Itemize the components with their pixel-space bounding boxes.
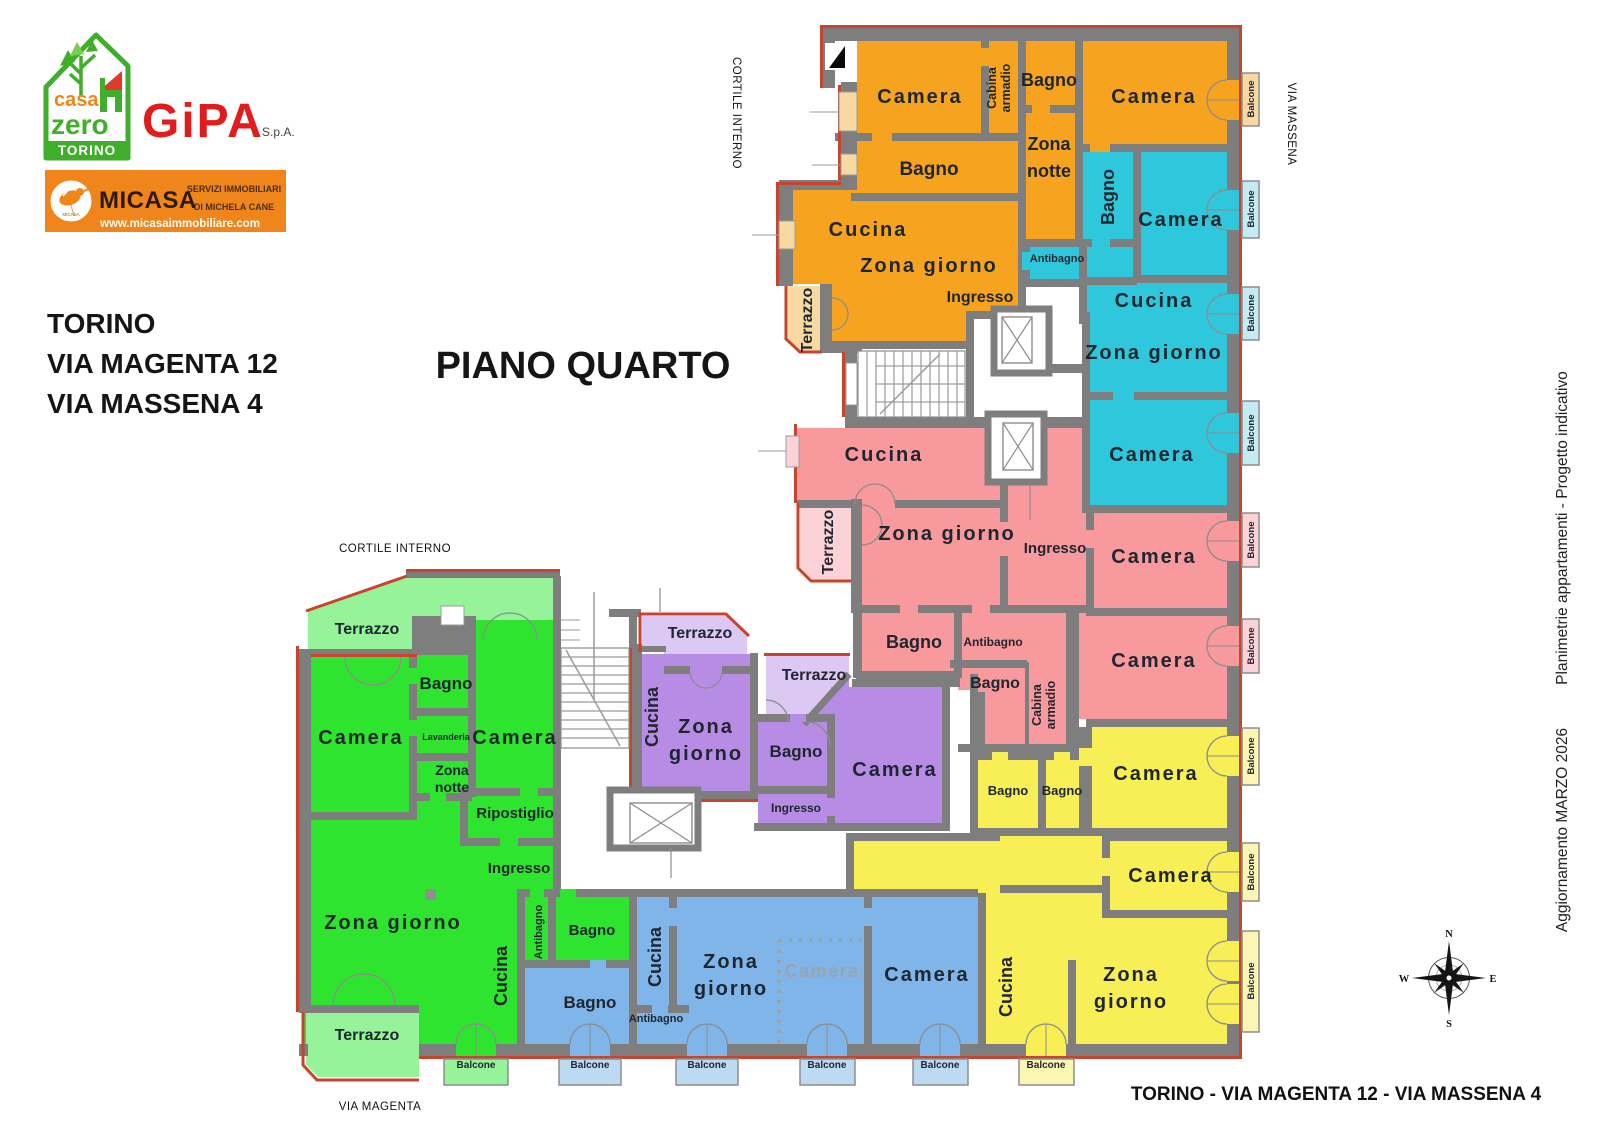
svg-text:Balcone: Balcone	[1246, 81, 1257, 118]
svg-text:VIA MASSENA 4: VIA MASSENA 4	[47, 388, 263, 419]
svg-text:CORTILE INTERNO: CORTILE INTERNO	[730, 57, 742, 169]
svg-text:VIA MAGENTA 12: VIA MAGENTA 12	[47, 348, 278, 379]
svg-text:Cucina: Cucina	[1115, 290, 1194, 312]
svg-text:Balcone: Balcone	[1246, 295, 1257, 332]
svg-text:Antibagno: Antibagno	[1030, 253, 1085, 265]
svg-text:Bagno: Bagno	[899, 159, 958, 180]
svg-text:Balcone: Balcone	[1027, 1060, 1066, 1071]
svg-text:notte: notte	[435, 779, 469, 795]
svg-text:DI MICHELA CANE: DI MICHELA CANE	[194, 202, 274, 212]
svg-text:Terrazzo: Terrazzo	[335, 621, 400, 638]
svg-text:Cucina: Cucina	[996, 956, 1016, 1017]
svg-text:zero: zero	[51, 109, 109, 140]
svg-text:Cucina: Cucina	[645, 926, 665, 987]
svg-text:Cucina: Cucina	[642, 686, 662, 747]
svg-text:Camera: Camera	[1109, 444, 1194, 466]
svg-text:Camera: Camera	[318, 727, 403, 749]
svg-text:Camera: Camera	[472, 727, 557, 749]
svg-text:Camera: Camera	[852, 759, 937, 781]
svg-text:Camera: Camera	[884, 964, 969, 986]
svg-text:Balcone: Balcone	[1246, 191, 1257, 228]
svg-text:MICASA: MICASA	[99, 187, 197, 214]
svg-text:Antibagno: Antibagno	[629, 1013, 684, 1025]
svg-text:armadio: armadio	[999, 63, 1013, 112]
svg-text:Bagno: Bagno	[770, 742, 823, 761]
svg-text:Ingresso: Ingresso	[488, 860, 551, 877]
svg-text:Balcone: Balcone	[457, 1060, 496, 1071]
svg-text:E: E	[1489, 974, 1496, 985]
svg-text:S.p.A.: S.p.A.	[262, 125, 295, 139]
svg-text:Bagno: Bagno	[564, 993, 617, 1012]
svg-text:Zona: Zona	[435, 762, 469, 778]
svg-text:Cabina: Cabina	[985, 66, 999, 109]
svg-text:armadio: armadio	[1044, 680, 1058, 729]
svg-text:Bagno: Bagno	[970, 675, 1020, 692]
svg-text:Cucina: Cucina	[845, 444, 924, 466]
svg-text:Planimetrie appartamenti - Pro: Planimetrie appartamenti - Progetto indi…	[1554, 371, 1571, 685]
svg-text:casa: casa	[54, 89, 99, 111]
svg-text:Balcone: Balcone	[1246, 963, 1257, 1000]
svg-text:W: W	[1399, 974, 1410, 985]
svg-text:Balcone: Balcone	[688, 1060, 727, 1071]
svg-text:Antibagno: Antibagno	[963, 635, 1022, 649]
svg-text:Balcone: Balcone	[1246, 415, 1257, 452]
svg-text:PIANO QUARTO: PIANO QUARTO	[436, 345, 731, 387]
svg-text:Bagno: Bagno	[569, 922, 616, 939]
svg-text:VIA MASSENA: VIA MASSENA	[1285, 83, 1297, 166]
svg-text:Zona giorno: Zona giorno	[1085, 342, 1223, 364]
svg-text:Bagno: Bagno	[1021, 70, 1077, 90]
svg-text:www.micasaimmobiliare.com: www.micasaimmobiliare.com	[99, 218, 260, 230]
svg-text:Bagno: Bagno	[1098, 169, 1118, 225]
svg-text:N: N	[1445, 929, 1453, 940]
svg-text:Camera: Camera	[877, 86, 962, 108]
svg-text:Bagno: Bagno	[420, 674, 473, 693]
svg-text:TORINO: TORINO	[47, 308, 155, 339]
svg-text:Camera: Camera	[1111, 546, 1196, 568]
svg-text:Balcone: Balcone	[571, 1060, 610, 1071]
svg-text:notte: notte	[1027, 161, 1071, 181]
svg-text:Zona giorno: Zona giorno	[860, 255, 998, 277]
svg-text:Balcone: Balcone	[1246, 522, 1257, 559]
svg-text:Balcone: Balcone	[808, 1060, 847, 1071]
svg-text:Balcone: Balcone	[921, 1060, 960, 1071]
svg-text:Aggiornamento MARZO 2026: Aggiornamento MARZO 2026	[1554, 728, 1571, 932]
svg-text:Ripostiglio: Ripostiglio	[476, 805, 554, 822]
svg-text:Cucina: Cucina	[829, 219, 908, 241]
svg-text:Ingresso: Ingresso	[1024, 540, 1087, 557]
svg-text:Ingresso: Ingresso	[947, 289, 1014, 306]
svg-text:TORINO - VIA MAGENTA 12 - VIA: TORINO - VIA MAGENTA 12 - VIA MASSENA 4	[1131, 1084, 1542, 1105]
svg-text:VIA MAGENTA: VIA MAGENTA	[339, 1101, 422, 1113]
svg-text:Camera: Camera	[784, 961, 859, 981]
svg-text:Balcone: Balcone	[1246, 628, 1257, 665]
svg-text:SERVIZI IMMOBILIARI: SERVIZI IMMOBILIARI	[187, 184, 281, 194]
svg-text:S: S	[1446, 1019, 1452, 1030]
svg-text:Balcone: Balcone	[1246, 738, 1257, 775]
svg-text:Antibagno: Antibagno	[533, 905, 545, 960]
svg-text:Camera: Camera	[1111, 86, 1196, 108]
svg-text:Ingresso: Ingresso	[771, 801, 821, 815]
svg-text:Zona: Zona	[703, 951, 759, 973]
svg-text:giorno: giorno	[1094, 991, 1168, 1013]
svg-text:Terrazzo: Terrazzo	[820, 509, 837, 574]
svg-text:CORTILE INTERNO: CORTILE INTERNO	[339, 543, 451, 555]
svg-text:Zona: Zona	[1028, 134, 1072, 154]
svg-text:Camera: Camera	[1111, 650, 1196, 672]
svg-text:Zona: Zona	[1103, 964, 1159, 986]
svg-text:giorno: giorno	[694, 978, 768, 1000]
svg-text:Bagno: Bagno	[988, 783, 1029, 798]
svg-text:Balcone: Balcone	[1246, 854, 1257, 891]
svg-text:Lavanderia: Lavanderia	[422, 732, 471, 742]
svg-text:Terrazzo: Terrazzo	[799, 287, 816, 352]
svg-text:Camera: Camera	[1128, 865, 1213, 887]
svg-text:GiPA: GiPA	[142, 95, 264, 148]
svg-text:Terrazzo: Terrazzo	[335, 1027, 400, 1044]
svg-text:Terrazzo: Terrazzo	[782, 667, 847, 684]
svg-text:Cabina: Cabina	[1030, 683, 1044, 726]
svg-text:TORINO: TORINO	[58, 143, 116, 158]
svg-text:Terrazzo: Terrazzo	[668, 625, 733, 642]
svg-text:MICASA: MICASA	[62, 212, 79, 217]
svg-text:Bagno: Bagno	[886, 632, 942, 652]
svg-text:Zona giorno: Zona giorno	[878, 523, 1016, 545]
svg-text:Bagno: Bagno	[1042, 783, 1083, 798]
svg-text:Camera: Camera	[1113, 763, 1198, 785]
svg-text:Zona: Zona	[678, 716, 734, 738]
svg-text:giorno: giorno	[669, 743, 743, 765]
svg-text:Camera: Camera	[1138, 209, 1223, 231]
svg-text:Cucina: Cucina	[491, 945, 511, 1006]
svg-text:Zona giorno: Zona giorno	[324, 912, 462, 934]
